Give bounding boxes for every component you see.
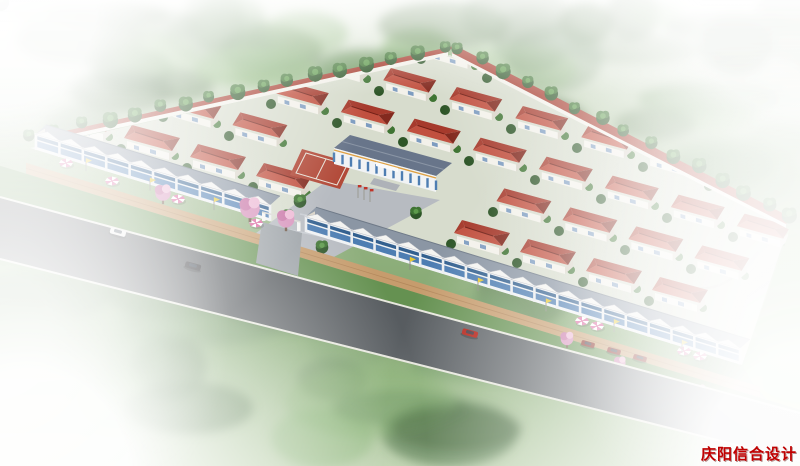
plaza-flag: [358, 185, 362, 187]
architectural-rendering: 庆阳信合设计: [0, 0, 800, 466]
watermark: 庆阳信合设计: [701, 443, 797, 464]
aerial-view-canvas: [0, 0, 800, 466]
yard-bush: [398, 137, 408, 147]
top-haze: [0, 0, 800, 95]
plaza-flag: [364, 187, 368, 189]
plaza-tree: [410, 207, 422, 219]
plaza-flag: [370, 189, 374, 191]
